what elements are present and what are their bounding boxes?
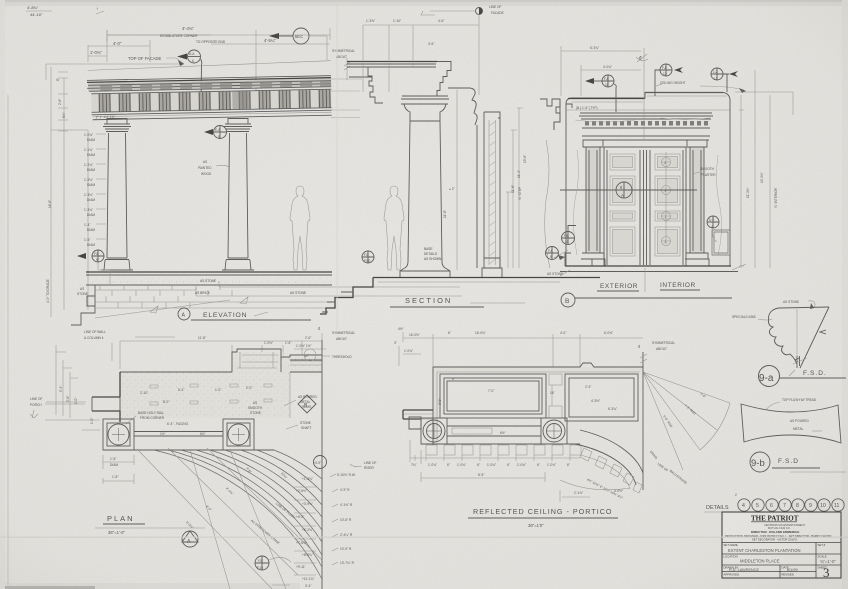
- svg-text:44'-10": 44'-10": [30, 12, 43, 17]
- svg-text:4'-8¾": 4'-8¾": [27, 5, 39, 10]
- svg-text:↑: ↑: [96, 6, 98, 11]
